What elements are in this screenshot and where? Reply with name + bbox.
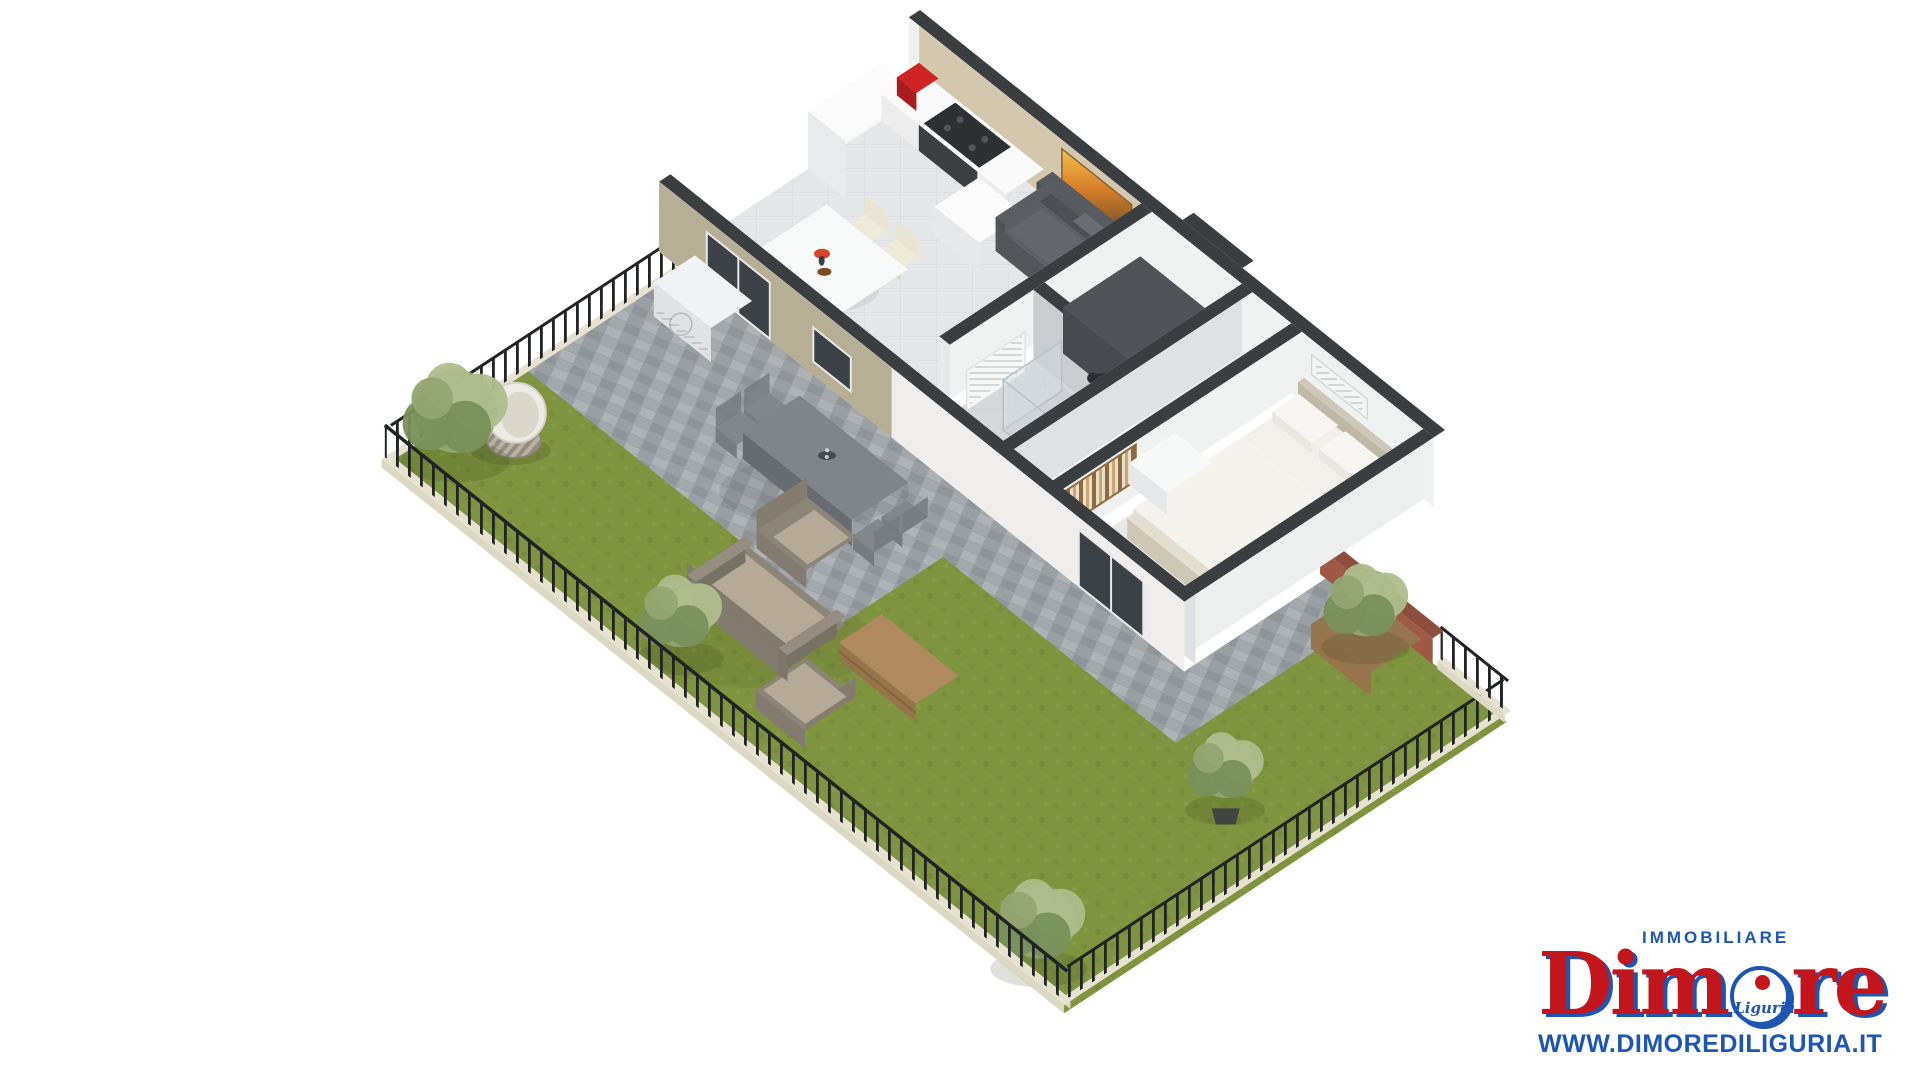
liguria-badge-icon: Liguria <box>1730 966 1790 1026</box>
logo-brand-name: Dim Liguria re <box>1538 944 1916 1026</box>
agency-logo: IMMOBILIARE Dim Liguria re WWW.DIMOREDIL… <box>1538 928 1916 1059</box>
badge-label: Liguria <box>1734 1001 1786 1015</box>
logo-brand-prefix: Dim <box>1538 944 1727 1026</box>
floorplan-3d-render <box>0 0 1920 1080</box>
logo-website: WWW.DIMOREDILIGURIA.IT <box>1538 1030 1916 1059</box>
badge-red-dot-icon <box>1755 975 1770 990</box>
floorplan-page: IMMOBILIARE Dim Liguria re WWW.DIMOREDIL… <box>0 0 1920 1080</box>
logo-brand-suffix: re <box>1791 944 1885 1026</box>
